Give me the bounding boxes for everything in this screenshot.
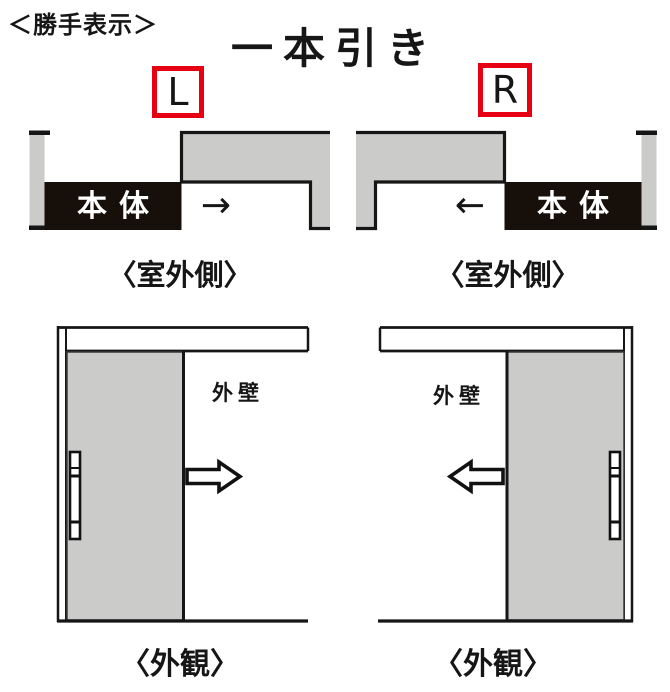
elevation-caption-left: 〈外観〉 [100, 639, 260, 683]
frame-jamb [30, 132, 45, 228]
door-panel-label: 本体 [77, 189, 161, 224]
plan-caption-left: 〈室外側〉 [100, 252, 260, 294]
frame-jamb [642, 132, 657, 228]
elevation-view-right: 外壁 [377, 324, 635, 625]
handing-letter-right: R [492, 71, 518, 109]
page-title: 一本引き [0, 15, 670, 76]
slide-direction-block-arrow [187, 462, 240, 491]
jamb-cap-top [636, 131, 657, 136]
jamb-cap-top [29, 131, 50, 136]
handle-body [610, 452, 620, 539]
door-panel [67, 352, 184, 620]
slide-direction-arrow: ← [455, 185, 485, 226]
door-handle [70, 452, 80, 539]
door-handle [610, 452, 620, 539]
door-panel [507, 352, 624, 620]
handle-body [70, 452, 80, 539]
plan-view-right: 本体 ← [356, 129, 657, 232]
exterior-wall-label: 外壁 [212, 381, 264, 405]
plan-caption-right: 〈室外側〉 [428, 252, 588, 294]
handing-badge-left: L [152, 66, 204, 118]
handing-badge-right: R [478, 63, 532, 117]
handing-letter-left: L [167, 73, 188, 111]
elevation-view-left: 外壁 [55, 324, 310, 625]
exterior-wall-label: 外壁 [433, 384, 485, 408]
slide-direction-block-arrow [450, 462, 503, 491]
slide-direction-arrow: → [201, 185, 231, 226]
plan-view-left: 本体 → [29, 129, 330, 232]
page: ＜勝手表示＞ 一本引き L R 本体 → 本体 ← 〈室外側〉 〈室外側〉 [0, 0, 670, 692]
door-panel-label: 本体 [537, 189, 621, 224]
elevation-caption-right: 〈外観〉 [413, 639, 573, 683]
